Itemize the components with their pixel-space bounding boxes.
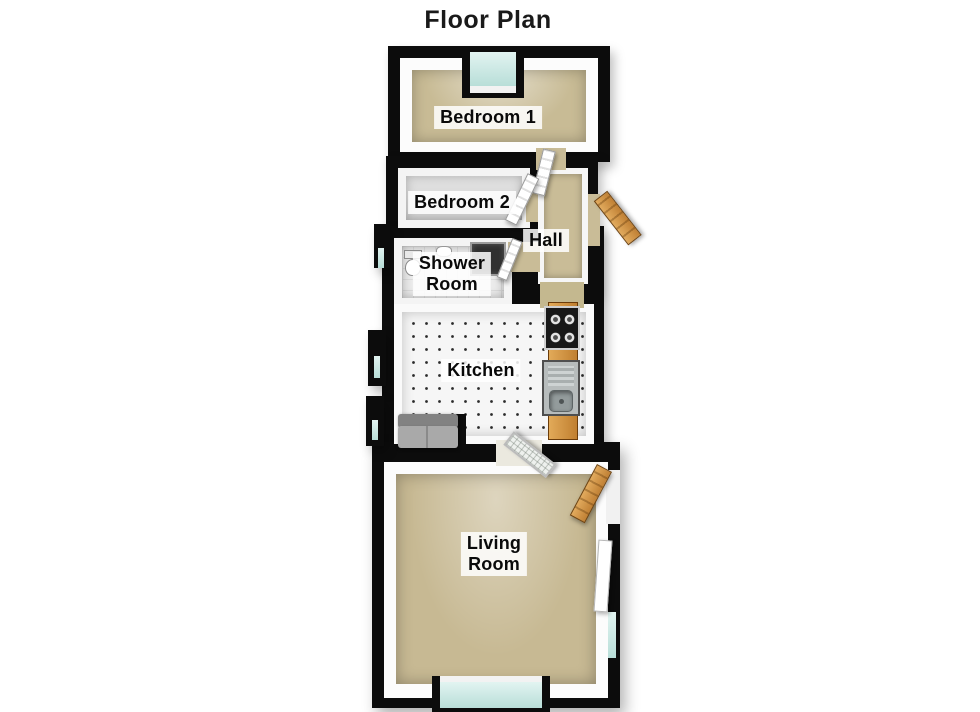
sink-drainer — [548, 366, 574, 386]
window-sill — [470, 86, 516, 93]
room-label-bedroom-1: Bedroom 1 — [434, 106, 542, 129]
room-label-bedroom-2: Bedroom 2 — [408, 191, 516, 214]
living-room-floor — [384, 462, 608, 698]
sofa-icon — [398, 414, 458, 448]
room-label-living-room: Living Room — [461, 532, 527, 576]
gas-hob-icon — [544, 306, 580, 350]
window-glass — [440, 682, 542, 708]
right-wall-window-icon — [608, 612, 616, 658]
sink-basin — [549, 390, 573, 412]
room-label-kitchen: Kitchen — [441, 359, 520, 382]
sofa-seat — [398, 426, 458, 448]
left-wall-window-icon — [374, 356, 380, 378]
hob-burner — [550, 314, 561, 325]
hob-burner — [550, 332, 561, 343]
room-label-shower-room: Shower Room — [413, 252, 491, 296]
floor-plan: Floor Plan Bedroom 1 Bedroom 2 Hall Show… — [0, 0, 980, 712]
hob-burner — [564, 314, 575, 325]
hob-burner — [564, 332, 575, 343]
sink-drain — [559, 399, 564, 404]
room-label-hall: Hall — [523, 229, 569, 252]
window-glass — [470, 52, 516, 86]
page-title: Floor Plan — [424, 6, 551, 35]
bay-window-bottom — [432, 676, 550, 712]
bay-window-top — [462, 46, 524, 98]
left-wall-window-icon — [372, 420, 378, 440]
left-wall-window-icon — [378, 248, 384, 268]
kitchen-sink-icon — [542, 360, 580, 416]
